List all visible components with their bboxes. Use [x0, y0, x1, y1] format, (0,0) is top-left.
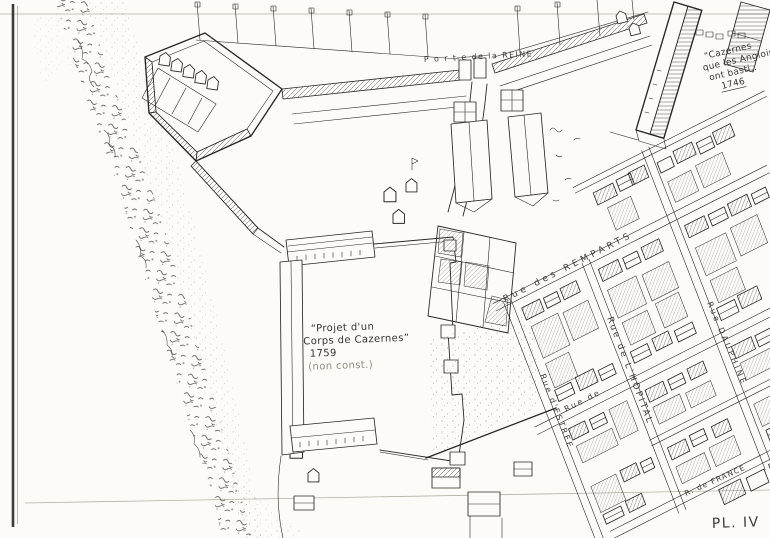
- garden-enclosure: [428, 226, 516, 333]
- bastion-casemates: [159, 52, 219, 90]
- flanking-buildings: [451, 90, 580, 212]
- shoreline-texture: [30, 0, 300, 538]
- svg-text:“Projet d'un Corps de: “Projet d'un Corps de Cazernes” 1759 (no…: [303, 320, 414, 373]
- project-line2: Corps de Cazernes”: [303, 333, 409, 348]
- bottom-houses: [432, 462, 532, 538]
- rampart-west: [196, 40, 467, 124]
- drawing-canvas: P o r t e de la REINE “Cazernes que les …: [0, 0, 770, 538]
- project-line1: “Projet d'un: [311, 322, 375, 335]
- parade-huts: [384, 158, 418, 223]
- map-plate: P o r t e de la REINE “Cazernes que les …: [0, 0, 770, 538]
- scrub-patch: [550, 128, 580, 201]
- plate-number: PL. IV: [712, 514, 760, 532]
- town-block-4b: [590, 456, 665, 525]
- town-block-2: [598, 238, 696, 364]
- project-line3: 1759: [310, 348, 337, 360]
- label-project-barracks: “Projet d'un Corps de Cazernes” 1759 (no…: [303, 320, 414, 373]
- town-block-5a: [645, 361, 716, 425]
- project-line4: (non const.): [308, 360, 373, 373]
- town-block-4a: [569, 400, 640, 464]
- town-block-3: [685, 185, 770, 320]
